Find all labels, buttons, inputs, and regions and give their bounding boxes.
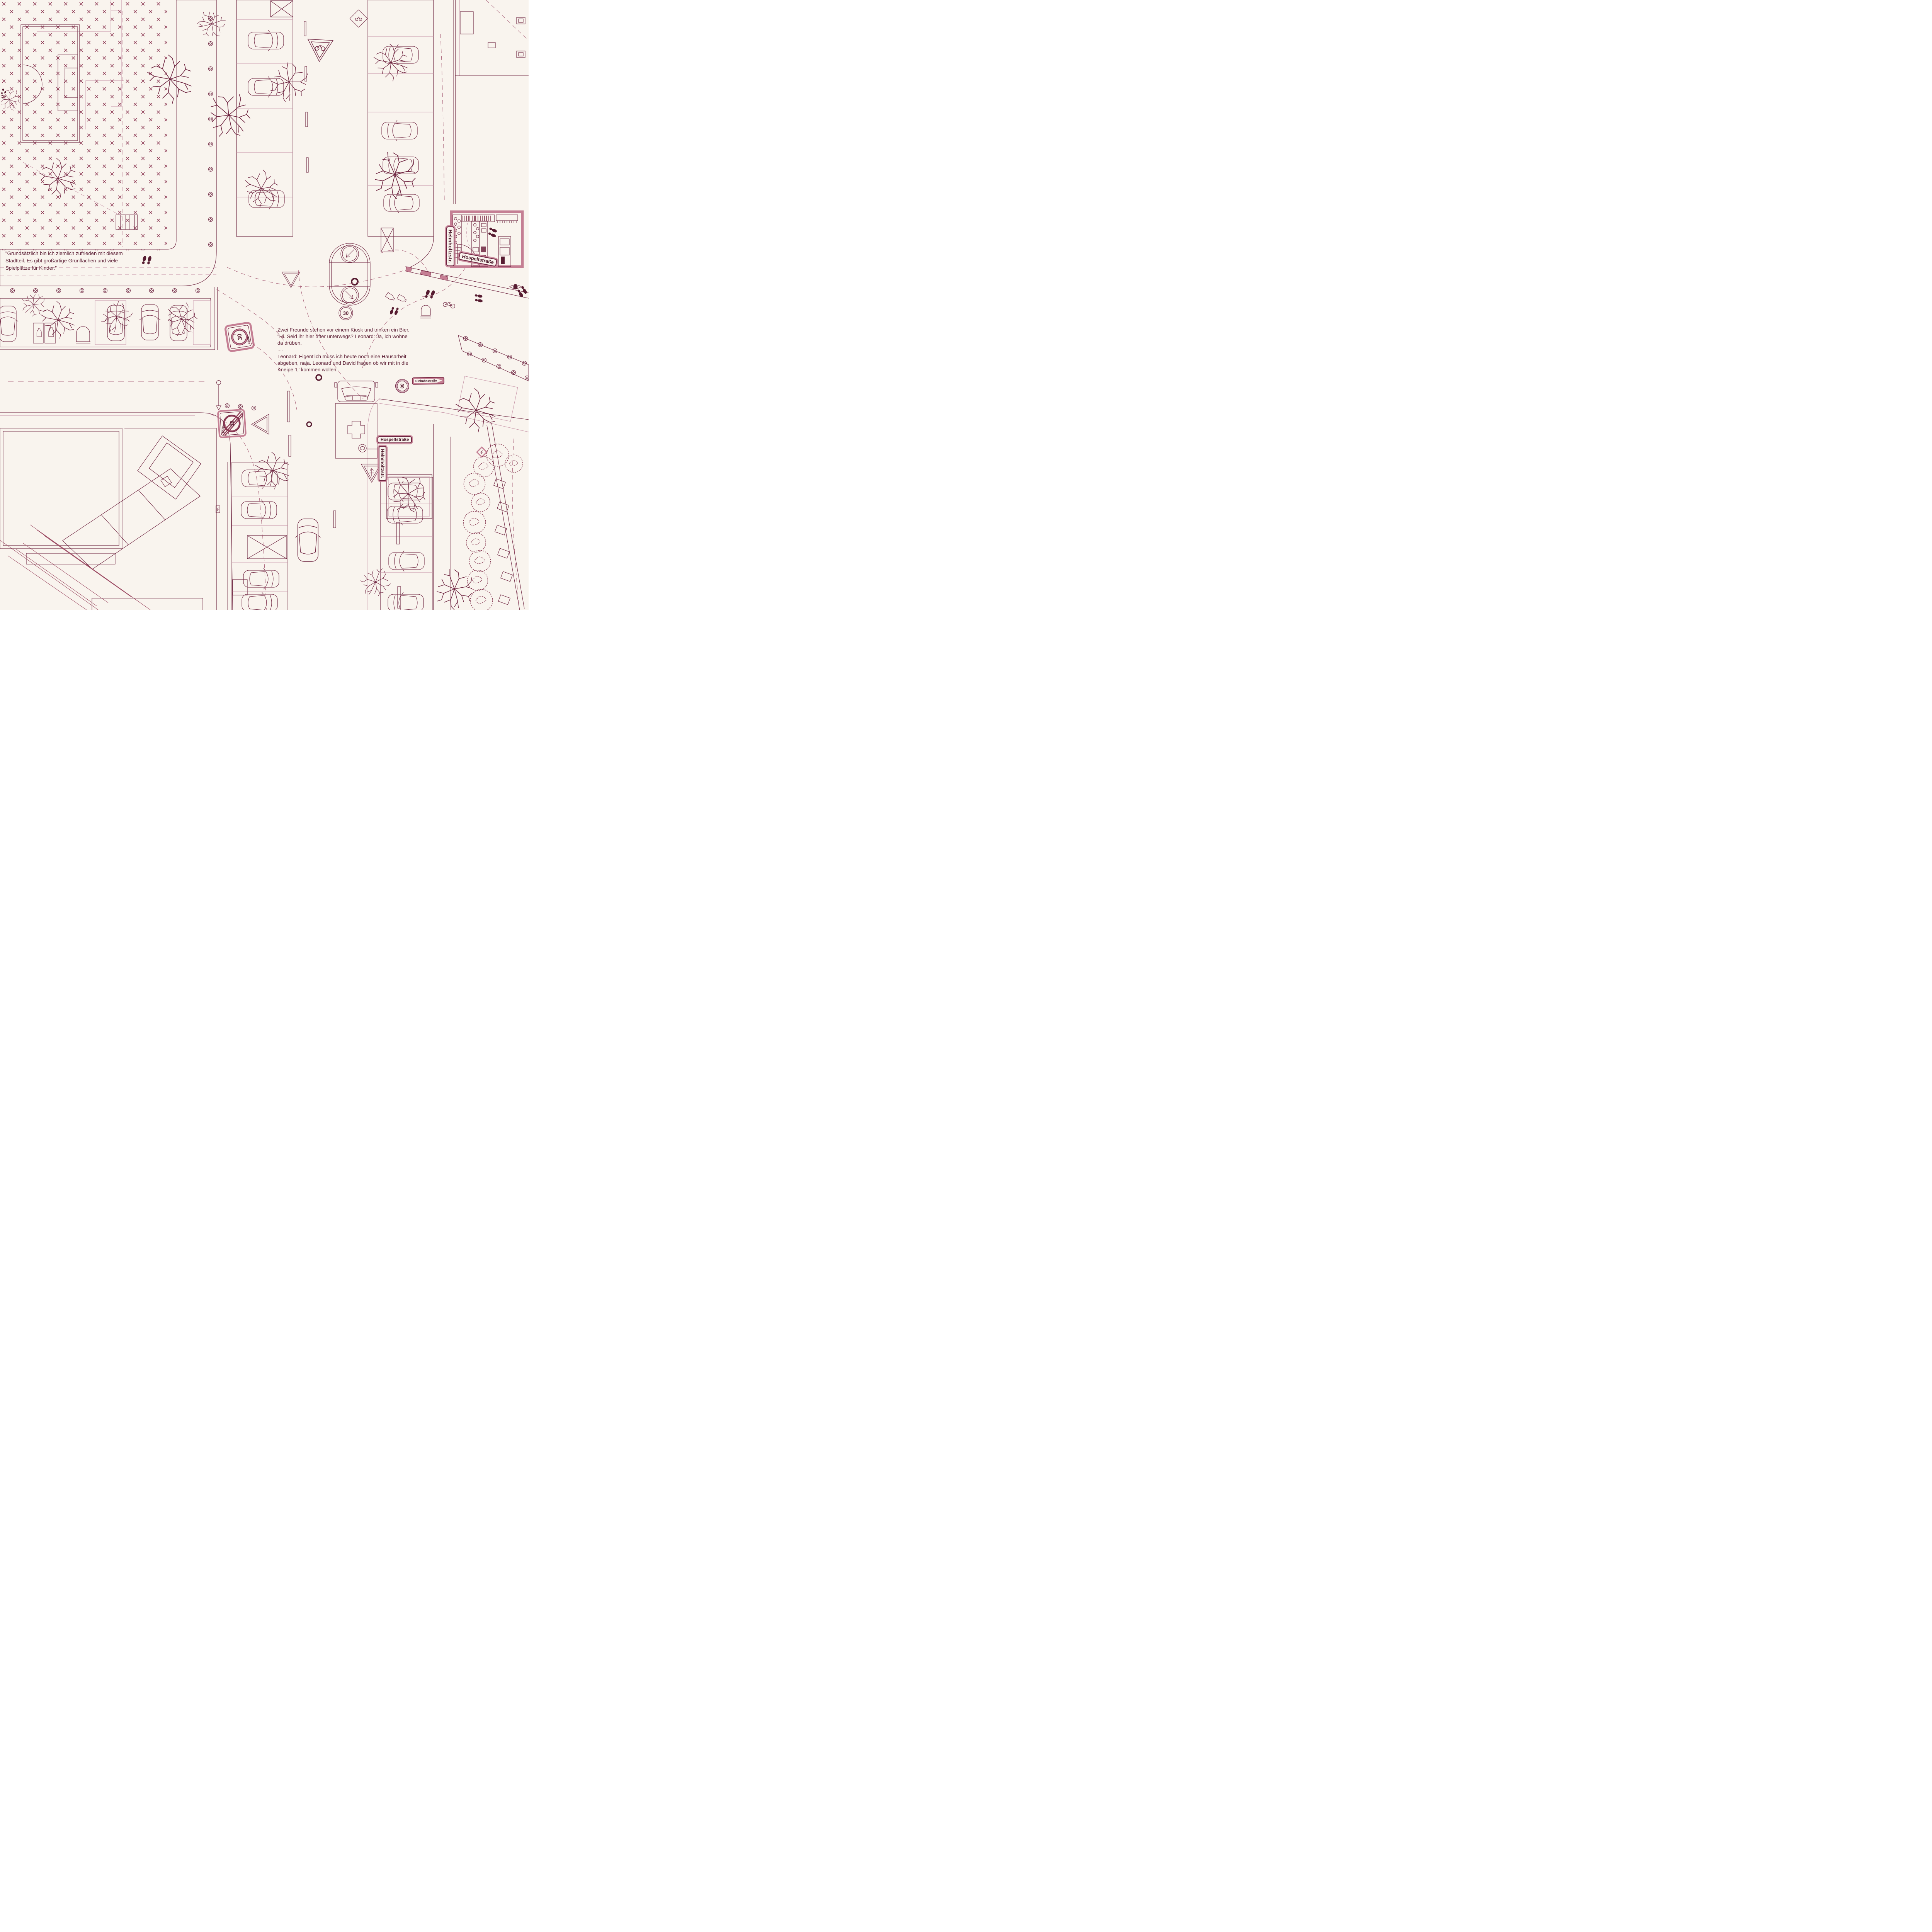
bench-icon [420, 305, 431, 318]
diamond-bicycle-sign [350, 10, 367, 27]
bollard-icon [307, 422, 311, 427]
zone30-exit-word: ZONE [221, 425, 225, 433]
site-plan-canvas: 30 30 ZONE 30 ZONE 30 [0, 0, 529, 610]
speed-30-sign: 30 [339, 306, 353, 320]
island-speed-value: 30 [343, 310, 349, 316]
bicycle-icon [315, 45, 325, 51]
yield-bicycle-sign [307, 39, 333, 62]
playground-block [0, 0, 167, 250]
medical-cross-icon [348, 421, 365, 438]
streetlamp-icon [216, 381, 221, 410]
street-plate-hospelt-center: Hospeltstraße [378, 436, 412, 443]
street-curbs [0, 236, 450, 610]
bollard-icon [316, 375, 321, 380]
bollard-icon [352, 279, 358, 285]
residential-block [0, 428, 247, 610]
lane-dashes [304, 21, 308, 172]
bicycle-icon [355, 17, 362, 21]
courtyard-annex [138, 436, 201, 499]
street-plate-einbahn: Einbahnstraße [412, 377, 444, 384]
bottle-bank [33, 323, 56, 343]
courtyard-wing [63, 469, 200, 569]
playground-gravel [0, 0, 167, 250]
terrace-tables [494, 479, 513, 605]
quote-annotation: "Grundsätzlich bin ich ziemlich zufriede… [5, 250, 141, 272]
north-sidewalk-parking [0, 298, 211, 347]
zone30-exit-sign: 30 ZONE [218, 410, 246, 438]
ambulance [335, 381, 378, 458]
north-street [236, 0, 434, 252]
hatched-roof [0, 525, 151, 610]
hedge-row [463, 444, 523, 610]
street-plate-helmholtz-center: Helmholtzstr. [379, 446, 386, 481]
one-way-arrow-icon: Einbahnstraße [414, 378, 442, 383]
zone30-entry-sign: 30 ZONE [225, 322, 254, 352]
site-plan-drawing: 30 30 ZONE 30 ZONE 30 [0, 0, 529, 610]
lightning-icon [477, 447, 486, 457]
traffic-island: 30 [329, 243, 370, 320]
eye-icon [510, 284, 521, 289]
northeast-block [453, 0, 529, 204]
driving-car [296, 519, 321, 561]
kiosk-story-annotation: Zwei Freunde stehen vor einem Kiosk und … [277, 327, 430, 373]
lane-dashes-south [287, 391, 401, 608]
speed-30-sign-east: 30 [396, 379, 409, 393]
east-speed-value: 30 [400, 383, 405, 389]
street-plate-helmholtz-north: Helmholtzstr. [446, 226, 454, 266]
south-street [232, 391, 433, 610]
bicycle-icon [443, 301, 456, 309]
ramp [458, 335, 529, 381]
beer-bottles [385, 293, 407, 303]
kiosk-hut-icon [76, 327, 90, 344]
keep-side-arrow-icon [341, 245, 359, 263]
keep-side-arrow-icon [341, 286, 359, 304]
